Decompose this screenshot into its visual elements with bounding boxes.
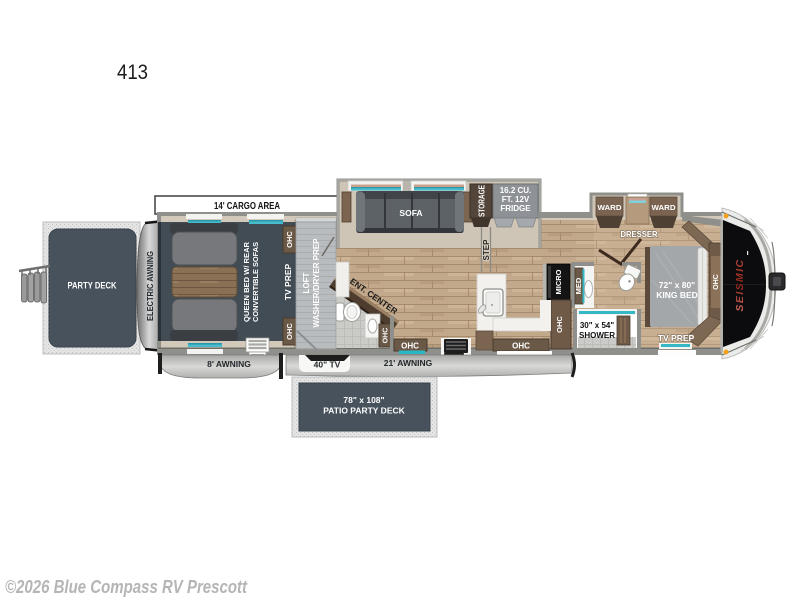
svg-text:OHC: OHC — [401, 342, 419, 351]
svg-text:LOFT: LOFT — [302, 272, 311, 293]
svg-text:78" x 108": 78" x 108" — [343, 395, 384, 405]
svg-text:OHC: OHC — [713, 274, 720, 290]
svg-text:FRIDGE: FRIDGE — [500, 204, 531, 213]
svg-text:ELECTRIC AWNING: ELECTRIC AWNING — [146, 251, 155, 321]
svg-text:FT. 12V: FT. 12V — [502, 195, 530, 204]
svg-text:STEP: STEP — [482, 239, 491, 261]
svg-text:TV PREP: TV PREP — [658, 333, 695, 343]
svg-text:SHOWER: SHOWER — [579, 331, 615, 340]
svg-text:SEISMIC: SEISMIC — [734, 259, 746, 312]
svg-text:QUEEN BED W/ REAR: QUEEN BED W/ REAR — [242, 241, 251, 322]
svg-text:OHC: OHC — [383, 328, 390, 344]
svg-text:OHC: OHC — [555, 316, 564, 333]
svg-text:PARTY DECK: PARTY DECK — [68, 281, 117, 291]
svg-text:TV PREP: TV PREP — [283, 263, 293, 300]
svg-text:OHC: OHC — [285, 231, 294, 248]
svg-text:MED: MED — [574, 277, 583, 294]
svg-text:WASHER/DRYER PREP: WASHER/DRYER PREP — [312, 238, 321, 328]
svg-text:WARD: WARD — [598, 203, 623, 212]
svg-text:WARD: WARD — [652, 203, 677, 212]
svg-text:OHC: OHC — [285, 323, 294, 340]
svg-text:©2026 Blue Compass RV Prescott: ©2026 Blue Compass RV Prescott — [5, 576, 248, 597]
svg-text:8' AWNING: 8' AWNING — [207, 359, 251, 369]
svg-text:DRESSER: DRESSER — [621, 229, 658, 239]
svg-text:21' AWNING: 21' AWNING — [384, 358, 433, 368]
svg-text:40" TV: 40" TV — [314, 360, 341, 370]
svg-text:30" x 54": 30" x 54" — [580, 321, 614, 330]
svg-text:SOFA: SOFA — [399, 208, 422, 218]
svg-text:72" x 80": 72" x 80" — [659, 280, 695, 290]
svg-text:STORAGE: STORAGE — [478, 185, 487, 217]
svg-text:14' CARGO AREA: 14' CARGO AREA — [214, 200, 280, 212]
svg-text:CONVERTIBLE SOFAS: CONVERTIBLE SOFAS — [251, 242, 260, 322]
svg-text:MICRO: MICRO — [554, 269, 563, 294]
svg-text:16.2 CU.: 16.2 CU. — [500, 186, 532, 195]
svg-text:413: 413 — [117, 61, 148, 84]
svg-text:OHC: OHC — [512, 342, 530, 351]
svg-text:KING BED: KING BED — [656, 290, 698, 300]
svg-text:PATIO PARTY DECK: PATIO PARTY DECK — [323, 406, 405, 416]
